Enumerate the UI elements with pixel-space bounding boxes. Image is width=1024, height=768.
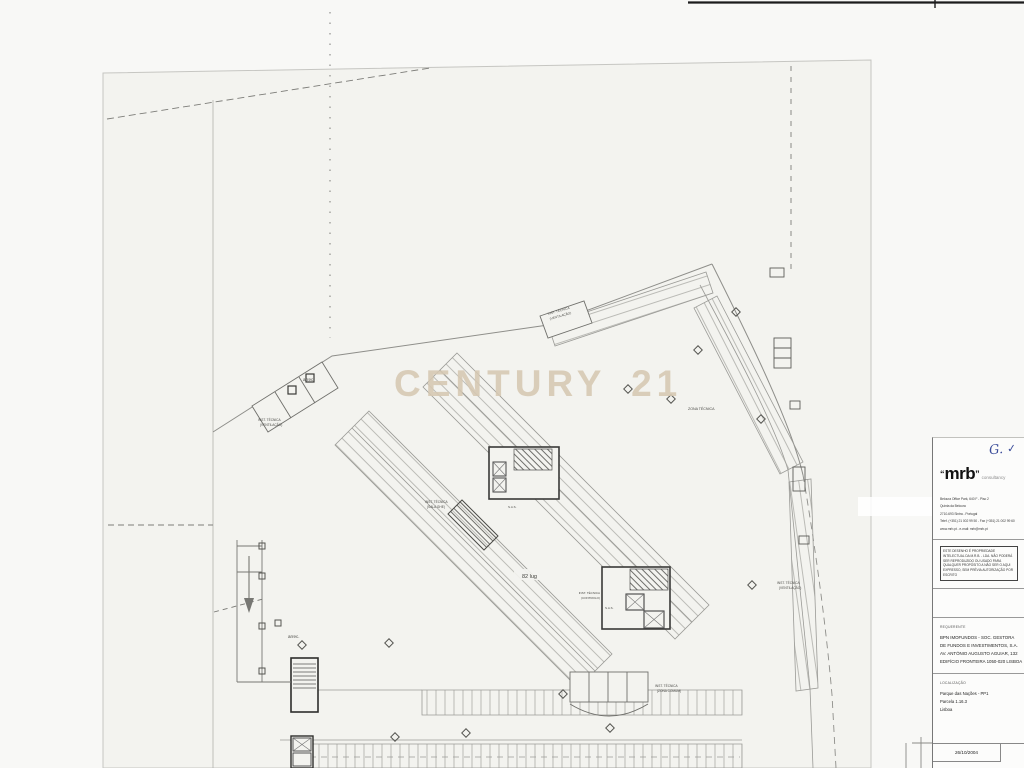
divider [933,539,1024,540]
requerente-value: BPN IMOFUNDOS - SOC. GESTORA DE FUNDOS E… [940,634,1024,667]
label-tech-controlo-1: INST. TÉCNICA [579,590,600,595]
localizacao-line: Parque das Nações - PP1 [940,690,1024,698]
label-tech-zona-comum-2: (ZONA COMUM) [657,689,681,693]
label-sas-a: S.A.S. [508,505,517,509]
label-tech-vent-left-1: INST. TÉCNICA [258,417,281,422]
logo-name: mrb [945,464,976,483]
stair-treads [514,449,552,470]
label-tech-controlo-2: (CONTROLO) [581,596,600,600]
localizacao-value: Parque das Nações - PP1 Parcela 1.16.3 L… [940,690,1024,714]
label-storage-bottom: arrec. [288,634,300,639]
label-tech-vent-right-1: INST. TÉCNICA [777,580,800,585]
handwritten-annotation: G.✓ [988,441,1017,459]
title-block: G.✓ “mrb”consultancy Beloura Office Park… [932,437,1024,768]
address-line: www.mrb.pt - e-mail: mrb@mrb.pt [940,526,1024,533]
divider [933,617,1024,618]
drawing-date: 26/10/2004 [933,744,1001,762]
localizacao-label: LOCALIZAÇÃO [940,681,1024,685]
divider [933,588,1024,589]
logo-tagline: consultancy [982,475,1006,480]
label-tech-sala-ghe-2: (SALA GHE) [427,505,445,509]
label-tech-sala-ghe-1: INST. TÉCNICA [425,499,448,504]
localizacao-line: Lisboa [940,706,1024,714]
address-line: 2710-693 Sintra - Portugal [940,511,1024,518]
scan-edge-lines [688,0,1024,8]
requerente-line: EDIFÍCIO FRONTEIRA 1050-020 LISBOA [940,658,1024,666]
copyright-notice: Este desenho é propriedade intelectual d… [940,546,1018,581]
address-line: Quinta da Beloura [940,503,1024,510]
scanned-floorplan-page: arrec. INST. TÉCNICA (VENTILAÇÃO) INST. … [0,0,1024,768]
floorplan-drawing: arrec. INST. TÉCNICA (VENTILAÇÃO) INST. … [0,0,1024,768]
label-tech-zona-comum-1: INST. TÉCNICA [655,683,678,688]
sheet-frame-fragments [906,737,932,768]
label-capacity: 82 lug [522,574,537,580]
logo-close-quote: ” [975,469,980,479]
mrb-logo: “mrb”consultancy [940,465,1024,487]
requerente-line: AV. ANTÓNIO AUGUSTO AGUIAR, 132 [940,650,1024,658]
parking-band-bottom-lower [300,744,742,768]
label-sas-b: S.A.S. [605,606,614,610]
address-line: Telef. (+351) 21 002 99 50 - Fax (+351) … [940,518,1024,525]
requerente-line: BPN IMOFUNDOS - SOC. GESTORA [940,634,1024,642]
label-storage-top: arrec. [303,377,315,382]
check-mark: ✓ [1006,442,1017,456]
label-tech-vent-right-2: (VENTILAÇÃO) [779,585,801,590]
label-zona-tecnica: ZONA TÉCNICA [688,406,715,411]
localizacao-line: Parcela 1.16.3 [940,698,1024,706]
stair-treads [630,569,668,590]
requerente-label: REQUERENTE [940,625,1024,629]
handwritten-initial: G. [988,442,1004,458]
divider [933,673,1024,674]
titleblock-bottom-table: 26/10/2004 [933,743,1024,768]
company-address: Beloura Office Park, 640 F - Piso 2 Quin… [940,496,1024,533]
requerente-line: DE FUNDOS E INVESTIMENTOS, S.A. [940,642,1024,650]
stair-core-lower [602,567,670,629]
address-line: Beloura Office Park, 640 F - Piso 2 [940,496,1024,503]
scan-artifact-band [858,497,932,516]
stair-core-upper [489,447,559,499]
label-tech-vent-left-2: (VENTILAÇÃO) [260,422,282,427]
